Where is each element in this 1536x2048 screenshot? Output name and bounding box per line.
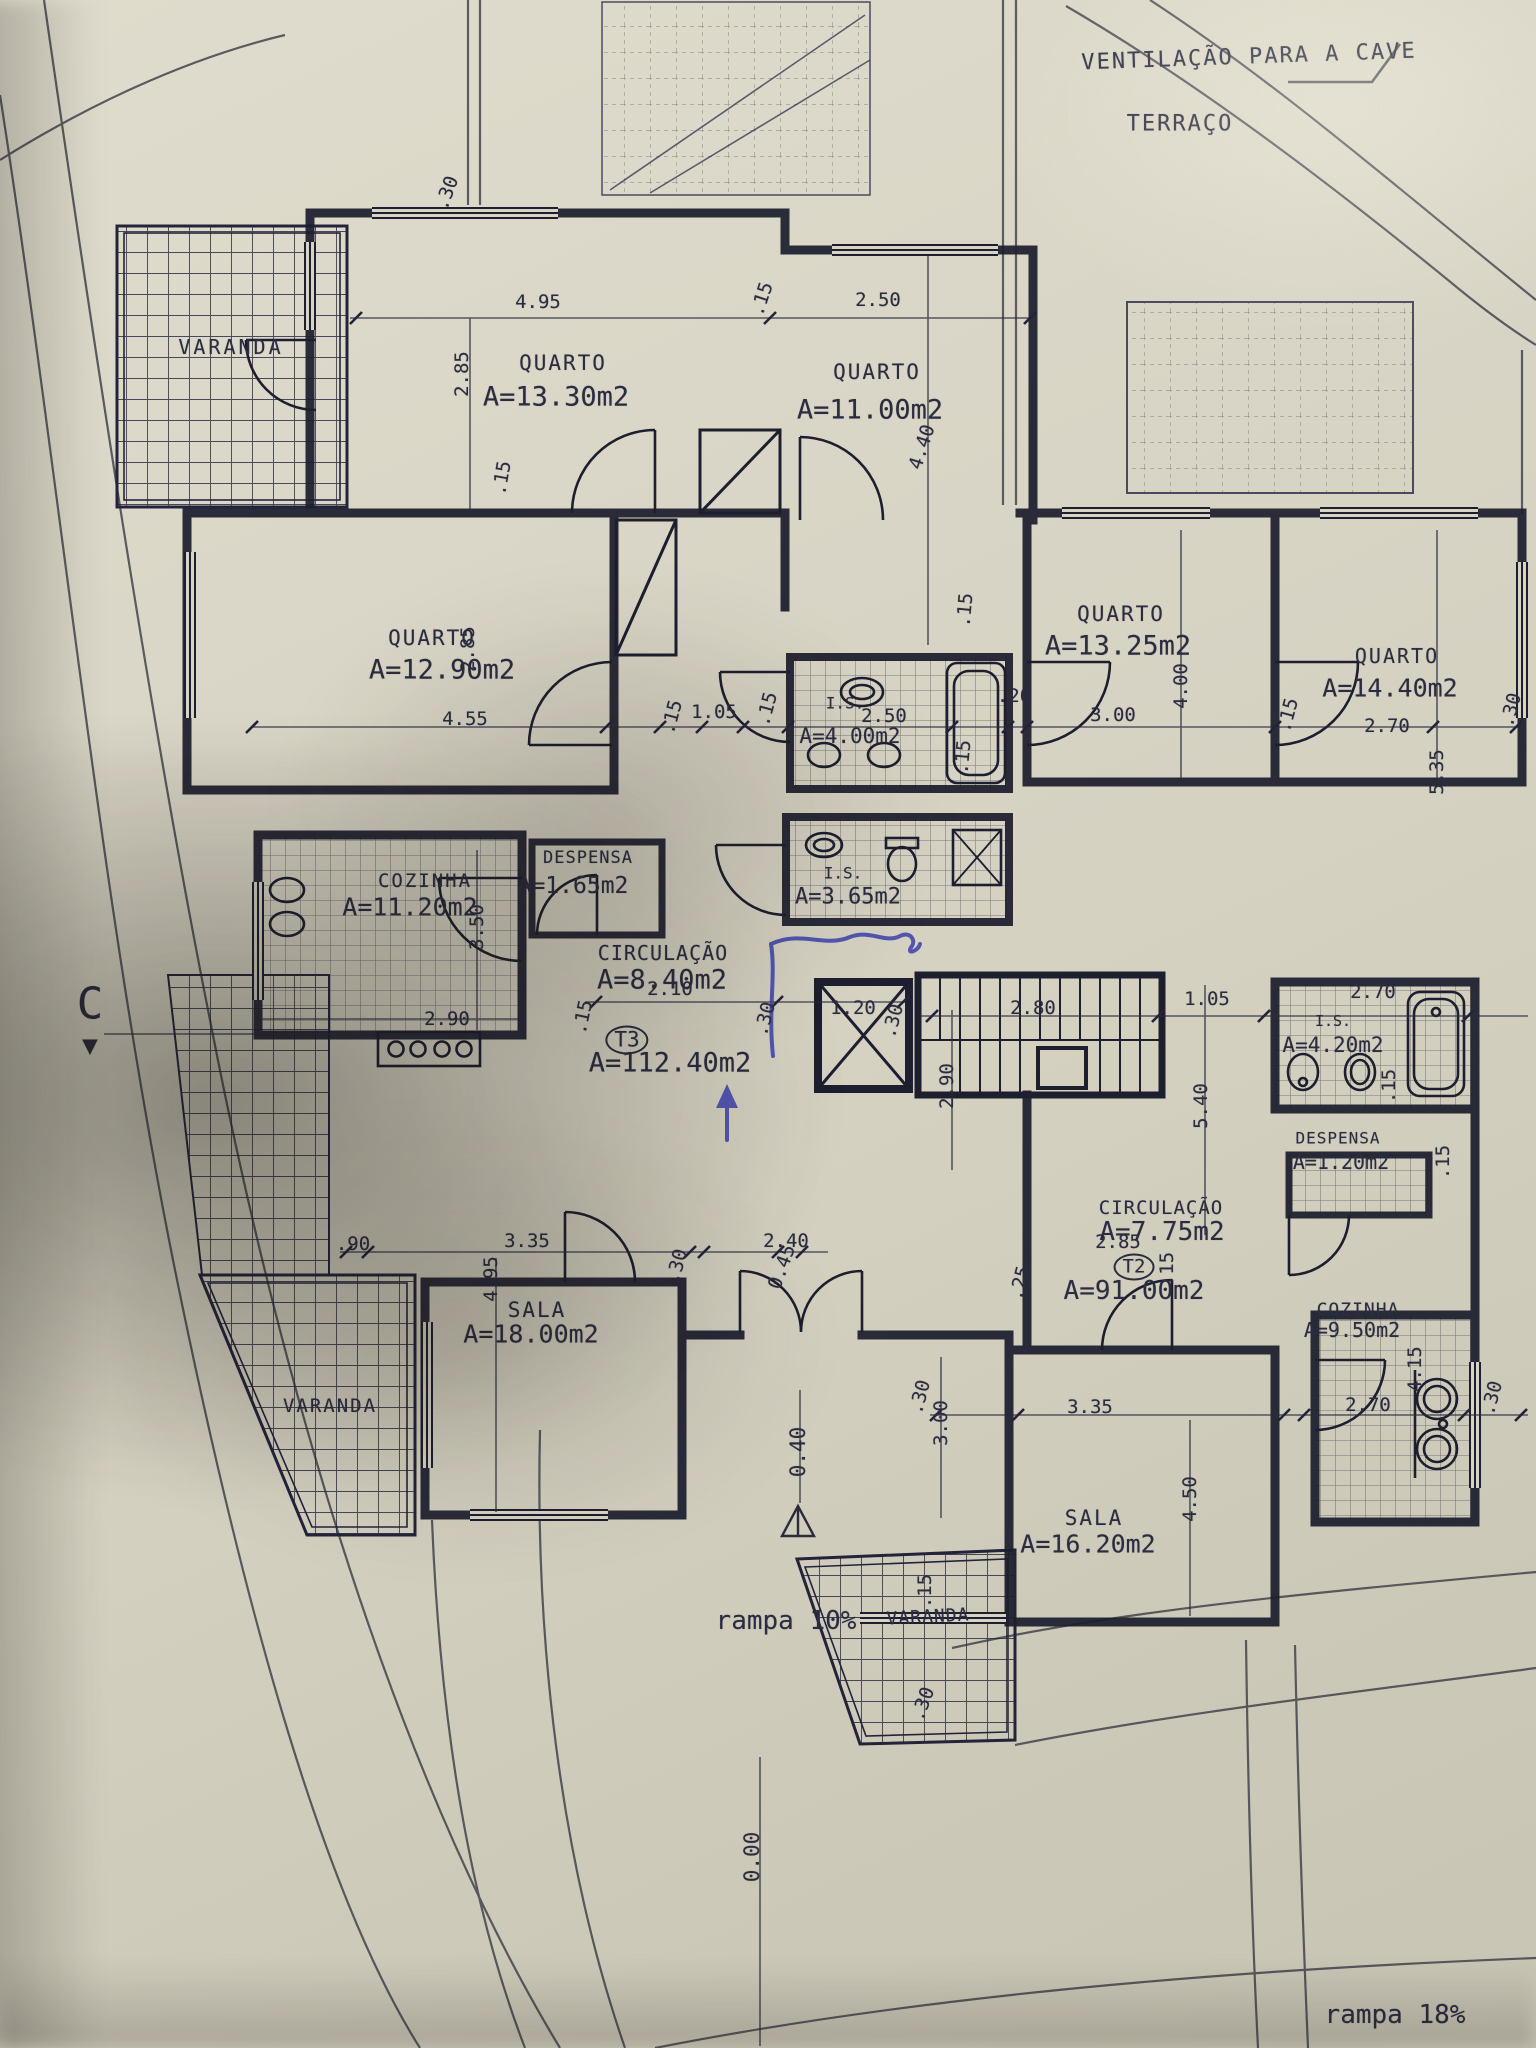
- room-label-circula-o: CIRCULAÇÃO: [1099, 1197, 1223, 1219]
- ramp-right-label: rampa 18%: [1325, 2000, 1466, 2030]
- room-label-a-11-20m2: A=11.20m2: [342, 893, 477, 922]
- dimension-label: 4.00: [1170, 663, 1192, 709]
- dimension-label: 2.85: [1095, 1231, 1141, 1253]
- level-entrance-label: 0.40: [786, 1427, 810, 1478]
- dimension-label: 2.90: [424, 1008, 470, 1030]
- dimension-label: 1.05: [1184, 988, 1230, 1010]
- dimension-label: 3.35: [1067, 1396, 1113, 1418]
- dimension-label: .20: [997, 685, 1031, 707]
- room-label-quarto: QUARTO: [1077, 602, 1165, 626]
- dimension-label: .15: [1378, 1069, 1400, 1103]
- dimension-label: 3.00: [930, 1400, 952, 1446]
- dimension-label: 2.70: [1364, 715, 1410, 737]
- dimension-label: .15: [914, 1574, 936, 1608]
- dimension-label: 1.05: [691, 701, 737, 723]
- dimension-label: .15: [951, 739, 976, 775]
- room-label-despensa: DESPENSA: [1295, 1129, 1380, 1148]
- room-label-a-1-20m2: A=1.20m2: [1293, 1150, 1389, 1174]
- room-label-sala: SALA: [508, 1298, 567, 1322]
- room-label-a-91-00m2: A=91.00m2: [1064, 1276, 1205, 1306]
- room-label-i-s-: I.S.: [1315, 1012, 1351, 1030]
- floorplan-photo: VENTILAÇÃO PARA A CAVE TERRAÇO C ▼ rampa…: [0, 0, 1536, 2048]
- room-label-i-s-: I.S.: [824, 864, 863, 883]
- dimension-label: 2.50: [855, 289, 901, 311]
- dimension-label: 1.20: [830, 997, 876, 1019]
- room-label-quarto: QUARTO: [1355, 644, 1439, 668]
- room-label-a-14-40m2: A=14.40m2: [1322, 674, 1457, 703]
- dimension-label: 3.35: [504, 1230, 550, 1252]
- dimension-label: 4.15: [1404, 1346, 1426, 1392]
- dimension-label: 4.95: [515, 291, 561, 313]
- level-benchmark-icon: [782, 1506, 814, 1536]
- dimension-label: 2.90: [936, 1063, 958, 1109]
- room-label-quarto: QUARTO: [833, 360, 921, 384]
- room-label-a-13-30m2: A=13.30m2: [483, 382, 629, 413]
- room-label-circula-o: CIRCULAÇÃO: [598, 941, 728, 965]
- dimension-label: 4.55: [442, 708, 488, 730]
- dimension-label: 2.85: [457, 626, 479, 672]
- room-label-a-13-25m2: A=13.25m2: [1045, 631, 1191, 662]
- room-label-a-4-00m2: A=4.00m2: [799, 724, 900, 748]
- dimension-label: .90: [336, 1233, 370, 1255]
- level-ground-label: 0.00: [740, 1832, 764, 1883]
- dimension-label: 2.70: [1345, 1394, 1391, 1416]
- dimension-label: 4.50: [1179, 1476, 1201, 1522]
- dimension-label: 2.10: [647, 978, 693, 1000]
- ramp-left-label: rampa 10%: [716, 1606, 857, 1636]
- dimension-label: 2.80: [1010, 997, 1056, 1019]
- room-label-i-s-: I.S.: [826, 694, 865, 713]
- room-label-a-1-65m2: A=1.65m2: [518, 873, 629, 899]
- room-label-varanda: VARANDA: [283, 1395, 377, 1417]
- room-label-a-18-00m2: A=18.00m2: [463, 1320, 598, 1349]
- dimension-label: 2.85: [451, 351, 473, 397]
- dimension-label: .15: [953, 592, 978, 628]
- room-label-a-11-00m2: A=11.00m2: [797, 395, 943, 426]
- section-marker: C: [77, 979, 104, 1030]
- room-label-sala: SALA: [1065, 1506, 1124, 1530]
- dimension-label: .15: [1432, 1145, 1454, 1179]
- room-label-despensa: DESPENSA: [543, 848, 633, 868]
- room-label-a-12-90m2: A=12.90m2: [369, 655, 515, 686]
- room-label-varanda: VARANDA: [178, 335, 283, 359]
- dimension-label: 5.35: [1426, 749, 1448, 795]
- dimension-label: 2.70: [1350, 981, 1396, 1003]
- room-label-a-9-50m2: A=9.50m2: [1304, 1318, 1400, 1342]
- room-label-a-4-20m2: A=4.20m2: [1282, 1033, 1383, 1057]
- entrance-double-door: [740, 1271, 862, 1332]
- annotation-terrace: TERRAÇO: [1127, 112, 1234, 137]
- room-label-quarto: QUARTO: [519, 351, 607, 375]
- dimension-label: 3.50: [466, 904, 488, 950]
- dimension-label: 4.95: [480, 1256, 502, 1302]
- room-label-a-16-20m2: A=16.20m2: [1020, 1530, 1155, 1559]
- dimension-label: 3.00: [1090, 704, 1136, 726]
- terrace-dashed-tiles: [1127, 302, 1413, 493]
- dimension-label: .15: [1156, 1252, 1178, 1286]
- dimension-label: 2.50: [861, 705, 907, 727]
- closet-icon: [616, 430, 780, 655]
- room-label-a-3-65m2: A=3.65m2: [795, 885, 901, 910]
- room-label-cozinha: COZINHA: [378, 870, 472, 892]
- dimension-label: 5.40: [1190, 1083, 1212, 1129]
- room-label-a-112-40m2: A=112.40m2: [589, 1048, 752, 1079]
- section-marker-arrow-icon: ▼: [82, 1031, 98, 1061]
